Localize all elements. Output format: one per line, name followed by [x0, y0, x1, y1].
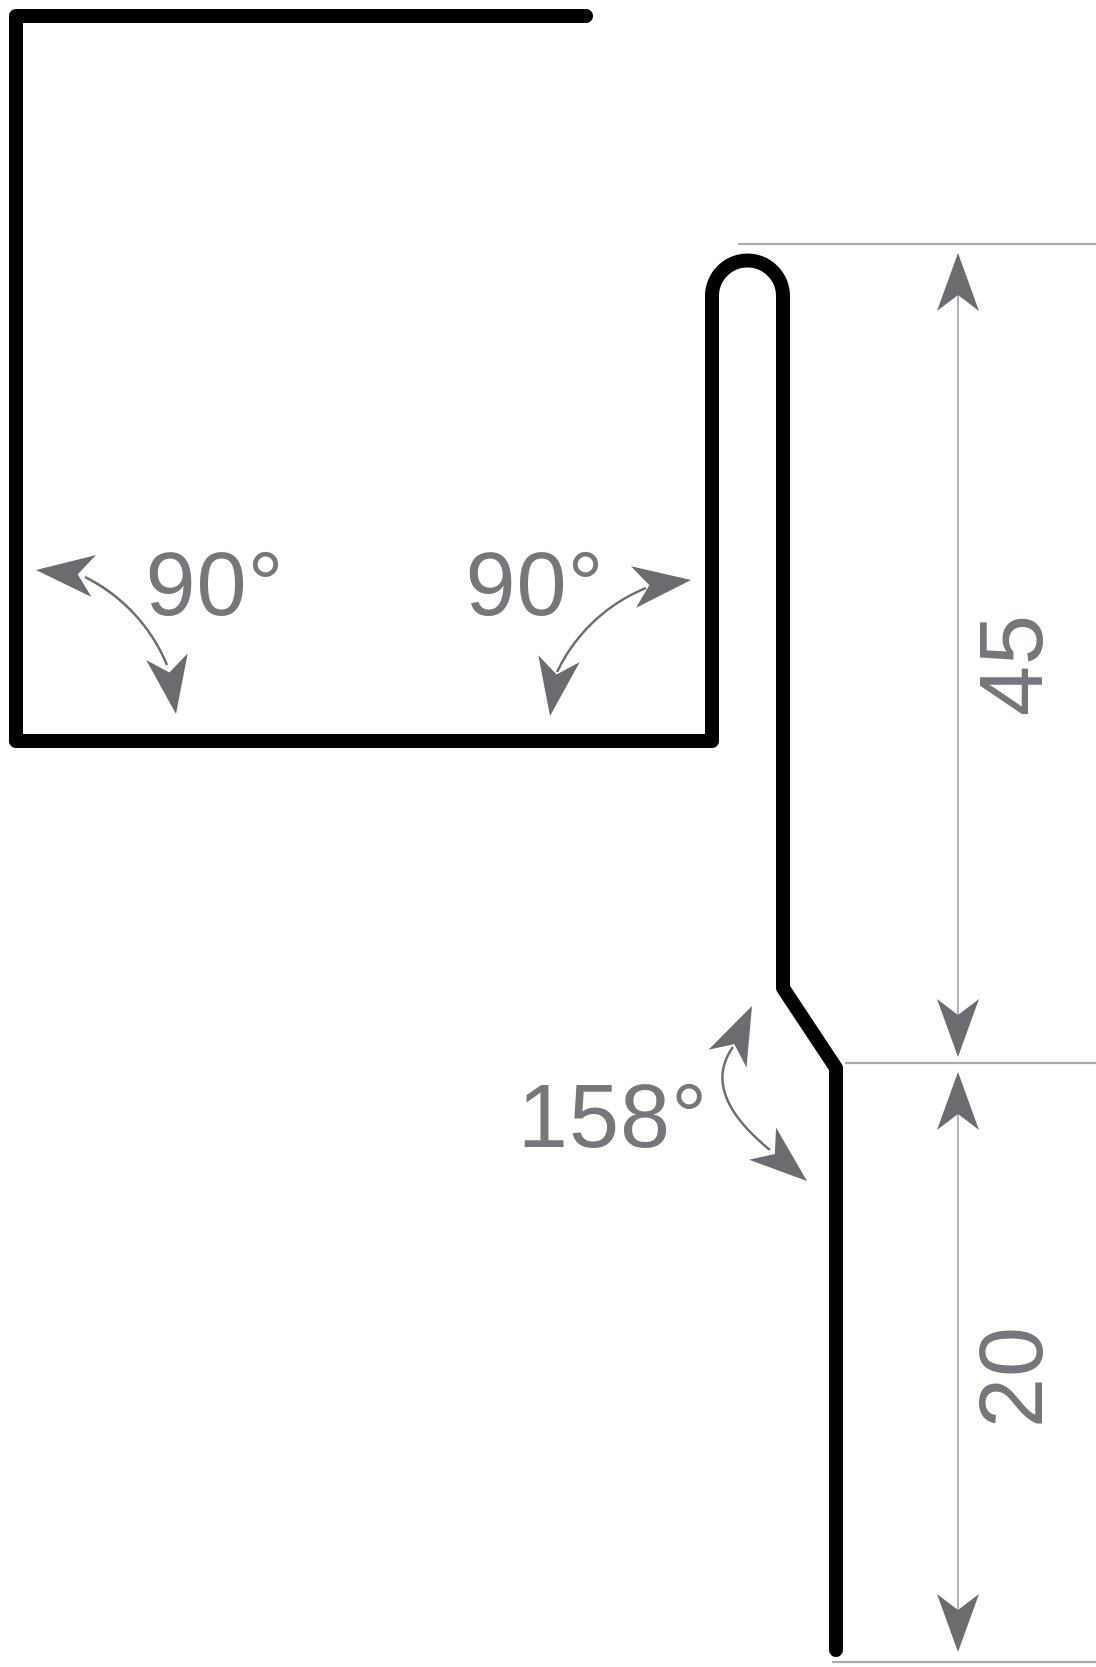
dimension-20-label: 20 — [962, 1326, 1062, 1428]
angle-right-label: 90° — [465, 535, 604, 635]
angle-left-label: 90° — [145, 535, 284, 635]
arrow-right-icon — [631, 559, 694, 608]
angle-annotation-left-90: 90° — [34, 535, 285, 717]
angle-annotation-158: 158° — [518, 997, 821, 1197]
dimension-45: 45 — [937, 253, 1062, 1057]
arrow-down-icon — [529, 655, 580, 719]
flashing-profile-diagram: 45 20 90° 90° 158° — [0, 0, 1096, 1667]
angle-bend-label: 158° — [518, 1067, 708, 1167]
profile-drawing-canvas: 45 20 90° 90° 158° — [0, 0, 1096, 1667]
dimension-45-label: 45 — [962, 614, 1062, 716]
arrow-up-right-icon — [708, 997, 771, 1067]
arrow-down-right-icon — [749, 1128, 820, 1197]
angle-annotation-right-90: 90° — [465, 535, 693, 719]
dimension-20: 20 — [937, 1072, 1062, 1652]
profile-outline — [16, 16, 836, 1650]
arrow-down-icon — [146, 653, 197, 717]
extension-lines — [738, 244, 1096, 1662]
arrow-left-icon — [34, 549, 96, 597]
